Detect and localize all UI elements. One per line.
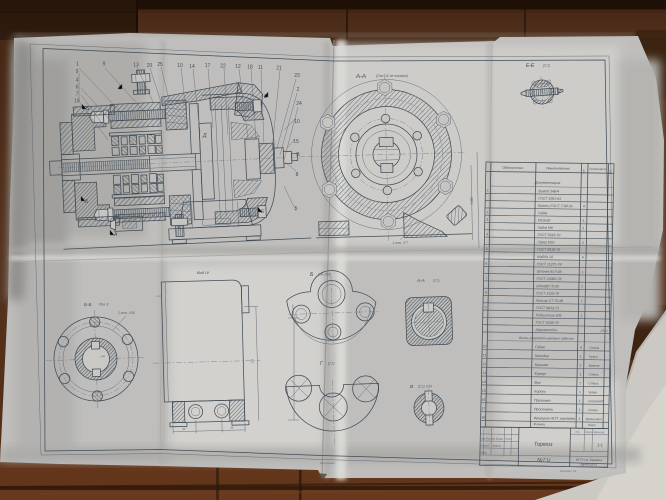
svg-text:1: 1: [76, 62, 79, 68]
svg-text:17: 17: [481, 407, 485, 411]
svg-text:Болты ГОСТ 7-80 Аз: Болты ГОСТ 7-80 Аз: [538, 204, 573, 208]
svg-text:Копировал: Копировал: [320, 461, 335, 465]
svg-text:Шарикоподш.: Шарикоподш.: [535, 328, 557, 332]
svg-text:1: 1: [580, 355, 582, 359]
svg-text:ГОСТ 5916-70: ГОСТ 5916-70: [537, 233, 560, 237]
svg-text:Б-Б: Б-Б: [84, 302, 92, 307]
svg-text:2: 2: [582, 241, 584, 245]
svg-text:Сталь: Сталь: [589, 346, 600, 350]
svg-text:Д: Д: [202, 133, 207, 139]
svg-text:18: 18: [481, 416, 485, 420]
svg-text:1: 1: [579, 399, 581, 403]
svg-text:Сталь: Сталь: [589, 373, 600, 377]
svg-text:40: 40: [182, 427, 186, 431]
svg-text:12: 12: [482, 362, 486, 366]
svg-text:Вывод 34Б/4: Вывод 34Б/4: [538, 189, 559, 193]
svg-text:Фланец: Фланец: [534, 422, 546, 426]
svg-text:(2:1): (2:1): [328, 362, 335, 366]
svg-text:Вал: Вал: [534, 381, 540, 385]
svg-text:9: 9: [484, 305, 486, 309]
svg-text:(см ∅22): (см ∅22): [318, 273, 331, 277]
svg-text:7: 7: [76, 92, 79, 98]
svg-text:1 отв. ∅ 7: 1 отв. ∅ 7: [392, 240, 408, 244]
svg-text:А-А: А-А: [416, 278, 425, 283]
svg-text:М10х30: М10х30: [538, 218, 551, 222]
svg-text:В: В: [410, 384, 413, 389]
svg-text:1: 1: [581, 299, 583, 303]
svg-text:Подп.: Подп.: [505, 437, 512, 441]
svg-text:Шайба 10: Шайба 10: [537, 255, 553, 259]
svg-text:24: 24: [296, 101, 302, 107]
svg-text:1: 1: [581, 270, 583, 274]
svg-text:(2:1) ∅14: (2:1) ∅14: [418, 385, 432, 389]
svg-text:Фрикц.мат: Фрикц.мат: [586, 417, 602, 421]
svg-text:Лит.: Лит.: [575, 431, 580, 434]
svg-text:Чугун: Чугун: [588, 423, 597, 427]
svg-text:2: 2: [581, 285, 583, 289]
svg-text:Пружинка: Пружинка: [534, 398, 551, 402]
svg-text:1: 1: [487, 189, 489, 193]
svg-text:1: 1: [578, 417, 580, 421]
svg-text:10: 10: [294, 119, 300, 125]
svg-text:15: 15: [482, 389, 486, 393]
svg-text:Сталь: Сталь: [588, 408, 599, 412]
svg-text:Шпонка 8х7х36: Шпонка 8х7х36: [537, 269, 562, 273]
svg-text:Е-Е: Е-Е: [526, 63, 535, 69]
svg-text:1: 1: [579, 372, 581, 376]
svg-text:Пов. 8: Пов. 8: [99, 303, 109, 307]
svg-text:22: 22: [220, 64, 226, 70]
svg-text:№ докум.: № докум.: [492, 437, 504, 441]
svg-text:11: 11: [258, 65, 263, 71]
svg-text:9: 9: [76, 69, 79, 75]
svg-text:25: 25: [157, 62, 163, 68]
svg-text:11: 11: [483, 353, 487, 357]
svg-text:21: 21: [276, 66, 282, 72]
svg-text:13: 13: [133, 63, 139, 69]
svg-text:Формат А1: Формат А1: [560, 469, 577, 473]
svg-text:(2:1): (2:1): [543, 64, 550, 68]
svg-text:Сталь65Г: Сталь65Г: [588, 399, 604, 403]
svg-text:Гайка М20: Гайка М20: [537, 240, 554, 244]
svg-text:14: 14: [482, 380, 486, 384]
svg-text:6: 6: [485, 262, 487, 266]
svg-text:23: 23: [294, 73, 300, 79]
svg-text:ГОСТ 8338-75: ГОСТ 8338-75: [536, 321, 559, 325]
svg-text:ГОСТ 1051-81: ГОСТ 1051-81: [538, 197, 561, 201]
svg-text:45: 45: [230, 426, 234, 430]
svg-text:5: 5: [295, 206, 298, 212]
svg-text:Кольцо СТ 70-85: Кольцо СТ 70-85: [536, 299, 563, 303]
svg-text:3: 3: [486, 218, 488, 222]
svg-text:(Пол. 11 не показан): (Пол. 11 не показан): [376, 74, 408, 78]
svg-text:ГОСТ 11371-78: ГОСТ 11371-78: [537, 262, 562, 266]
svg-text:∅260: ∅260: [470, 197, 474, 205]
svg-text:2: 2: [486, 210, 488, 214]
svg-text:15: 15: [293, 139, 299, 145]
svg-text:5: 5: [486, 247, 488, 251]
svg-text:Гайка: Гайка: [538, 211, 547, 215]
svg-text:Фрикцион М.П. накладка: Фрикцион М.П. накладка: [534, 416, 576, 421]
svg-text:7: 7: [485, 276, 487, 280]
svg-text:16: 16: [482, 398, 486, 402]
svg-text:10: 10: [177, 63, 183, 69]
svg-text:Разраб.: Разраб.: [481, 443, 491, 447]
svg-text:20: 20: [147, 63, 153, 69]
svg-text:1:1: 1:1: [597, 443, 604, 448]
svg-text:Штифт 5х30: Штифт 5х30: [536, 284, 559, 288]
svg-text:ГОСТ 5916-70: ГОСТ 5916-70: [537, 248, 560, 252]
svg-text:4: 4: [580, 346, 582, 350]
svg-text:13: 13: [482, 371, 486, 375]
svg-text:8: 8: [296, 172, 299, 178]
svg-text:12: 12: [235, 64, 241, 70]
svg-text:(1:1): (1:1): [433, 279, 440, 283]
svg-text:17: 17: [205, 63, 211, 69]
svg-text:2: 2: [297, 87, 300, 93]
svg-text:4: 4: [582, 256, 584, 260]
svg-text:4: 4: [486, 232, 488, 236]
svg-text:1: 1: [579, 408, 581, 412]
svg-text:6: 6: [583, 219, 585, 223]
svg-text:А-А: А-А: [355, 74, 366, 80]
svg-text:14: 14: [189, 64, 195, 70]
svg-text:ГОСТ 23360-78: ГОСТ 23360-78: [537, 277, 562, 281]
svg-text:Масса: Масса: [585, 431, 593, 434]
svg-text:2: 2: [581, 314, 583, 318]
svg-text:1: 1: [579, 381, 581, 385]
svg-text:23 кг: 23 кг: [599, 329, 608, 333]
svg-text:115: 115: [250, 358, 254, 363]
svg-text:Гайка: Гайка: [535, 345, 545, 349]
svg-text:Масштаб: Масштаб: [594, 431, 605, 434]
svg-text:ГОСТ 9833-73: ГОСТ 9833-73: [536, 306, 559, 310]
svg-text:Проставка: Проставка: [534, 407, 553, 411]
svg-text:8: 8: [485, 291, 487, 295]
svg-text:Крышка: Крышка: [535, 363, 549, 367]
svg-text:9: 9: [103, 62, 106, 68]
svg-text:Вид IV: Вид IV: [197, 270, 209, 275]
svg-text:1: 1: [579, 390, 581, 394]
svg-text:Пров.: Пров.: [480, 450, 487, 454]
svg-text:10: 10: [483, 344, 487, 348]
svg-text:18: 18: [247, 65, 253, 71]
svg-text:Чугун: Чугун: [588, 390, 597, 394]
svg-text:Гайка М8: Гайка М8: [538, 226, 553, 230]
svg-text:Вновь разрабатываемые изделия: Вновь разрабатываемые изделия: [519, 336, 574, 341]
svg-text:Обозначение: Обозначение: [502, 166, 523, 170]
svg-text:Подшипник 208: Подшипник 208: [536, 313, 562, 317]
svg-text:ГОСТ 3128-70: ГОСТ 3128-70: [536, 291, 559, 295]
svg-text:Корпус: Корпус: [534, 390, 546, 394]
svg-text:№7 U: №7 U: [537, 457, 551, 463]
svg-text:Чугун: Чугун: [589, 355, 598, 359]
svg-text:Иванов: Иванов: [492, 444, 502, 448]
svg-text:6: 6: [76, 85, 79, 91]
svg-text:Кол: Кол: [581, 169, 585, 174]
svg-text:Тормоз: Тормоз: [534, 442, 553, 448]
svg-text:Сталь: Сталь: [588, 381, 599, 385]
svg-text:16: 16: [74, 99, 80, 105]
svg-text:группа Д-41: группа Д-41: [580, 462, 597, 466]
svg-text:4: 4: [76, 78, 79, 84]
svg-text:Колодка: Колодка: [535, 354, 549, 358]
svg-text:2: 2: [582, 226, 584, 230]
svg-text:Наименование: Наименование: [546, 166, 570, 170]
svg-text:Примечание: Примечание: [589, 167, 607, 171]
svg-text:Корпус: Корпус: [535, 372, 547, 376]
svg-text:Бронза: Бронза: [589, 364, 600, 368]
svg-text:1: 1: [579, 363, 581, 367]
svg-text:2 отв. ∅10: 2 отв. ∅10: [117, 311, 135, 315]
svg-text:4: 4: [583, 204, 585, 208]
svg-text:∅45: ∅45: [100, 354, 106, 358]
svg-text:Документация: Документация: [534, 181, 561, 185]
